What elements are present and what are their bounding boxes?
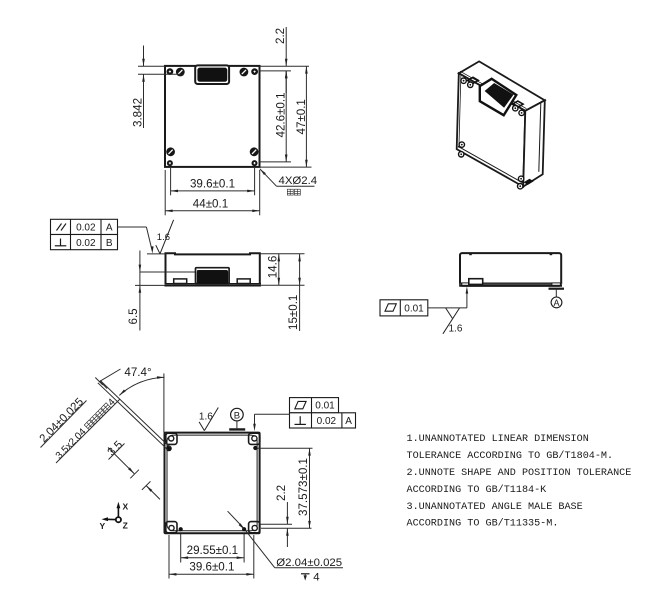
svg-text:B: B [234,410,240,421]
svg-text:A: A [345,416,352,427]
svg-text:6.5: 6.5 [127,308,140,324]
svg-text:29.55±0.1: 29.55±0.1 [187,544,239,557]
svg-text:Y: Y [100,521,106,531]
svg-text:A: A [106,223,113,234]
svg-text:0.01: 0.01 [315,401,335,412]
svg-text:B: B [106,238,113,249]
svg-text:2.2: 2.2 [274,28,287,44]
svg-text:Z: Z [123,521,128,531]
svg-text:3.842: 3.842 [131,98,144,127]
svg-text:37.573±0.1: 37.573±0.1 [297,458,310,516]
svg-text:44±0.1: 44±0.1 [193,198,228,211]
svg-text:2.UNNOTE SHAPE AND POSITION TO: 2.UNNOTE SHAPE AND POSITION TOLERANCE [407,468,632,479]
svg-text:1.UNANNOTATED LINEAR DIMENSION: 1.UNANNOTATED LINEAR DIMENSION [407,434,589,445]
svg-text:ACCORDING TO GB/T11335-M.: ACCORDING TO GB/T11335-M. [407,518,559,530]
svg-text:1.6: 1.6 [157,232,170,243]
svg-text:14.6: 14.6 [266,256,279,279]
svg-text:0.02: 0.02 [76,238,96,249]
svg-text:0.02: 0.02 [76,223,96,234]
svg-text:2.2: 2.2 [275,485,288,501]
svg-text:A: A [553,298,559,308]
svg-text:47.4°: 47.4° [124,366,151,379]
svg-text:X: X [123,502,129,512]
svg-text:42.6±0.1: 42.6±0.1 [275,92,288,137]
svg-text:39.6±0.1: 39.6±0.1 [190,178,235,191]
svg-text:1.6: 1.6 [449,324,463,335]
svg-text:39.6±0.1: 39.6±0.1 [189,561,234,574]
svg-text:15±0.1: 15±0.1 [287,295,300,330]
svg-text:0.02: 0.02 [317,416,337,427]
svg-text:TOLERANCE ACCORDING TO GB/T180: TOLERANCE ACCORDING TO GB/T1804-M. [407,450,614,462]
svg-text:ACCORDING TO GB/T1184-K: ACCORDING TO GB/T1184-K [407,484,548,496]
svg-text:4: 4 [313,571,319,583]
svg-text:4XØ2.4: 4XØ2.4 [279,175,318,187]
svg-text:47±0.1: 47±0.1 [295,99,308,134]
svg-text:Ø2.04±0.025: Ø2.04±0.025 [276,557,342,569]
svg-text:3.UNANNOTATED ANGLE MALE BASE: 3.UNANNOTATED ANGLE MALE BASE [407,502,583,513]
svg-text:1.6: 1.6 [199,411,213,422]
svg-text:0.01: 0.01 [404,304,424,315]
